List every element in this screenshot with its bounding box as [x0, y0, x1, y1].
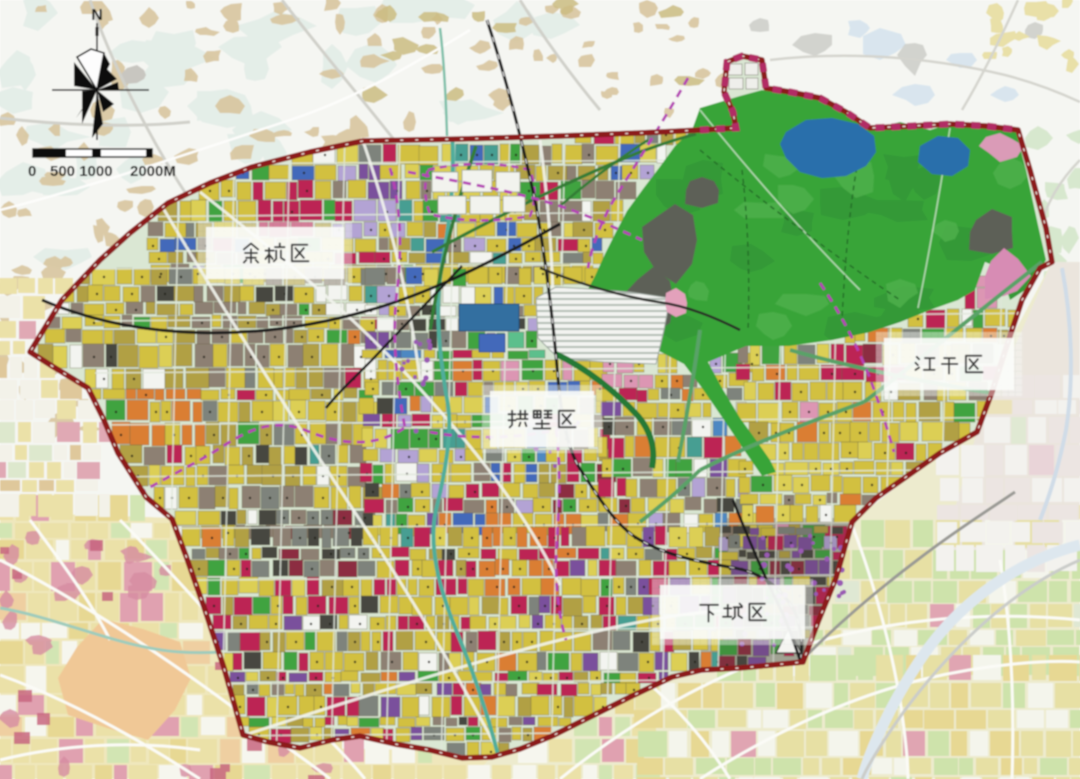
- svg-text:500 1000: 500 1000: [50, 163, 113, 180]
- svg-text:N: N: [91, 7, 103, 24]
- svg-text:0: 0: [28, 163, 36, 180]
- svg-text:2000M: 2000M: [130, 163, 176, 180]
